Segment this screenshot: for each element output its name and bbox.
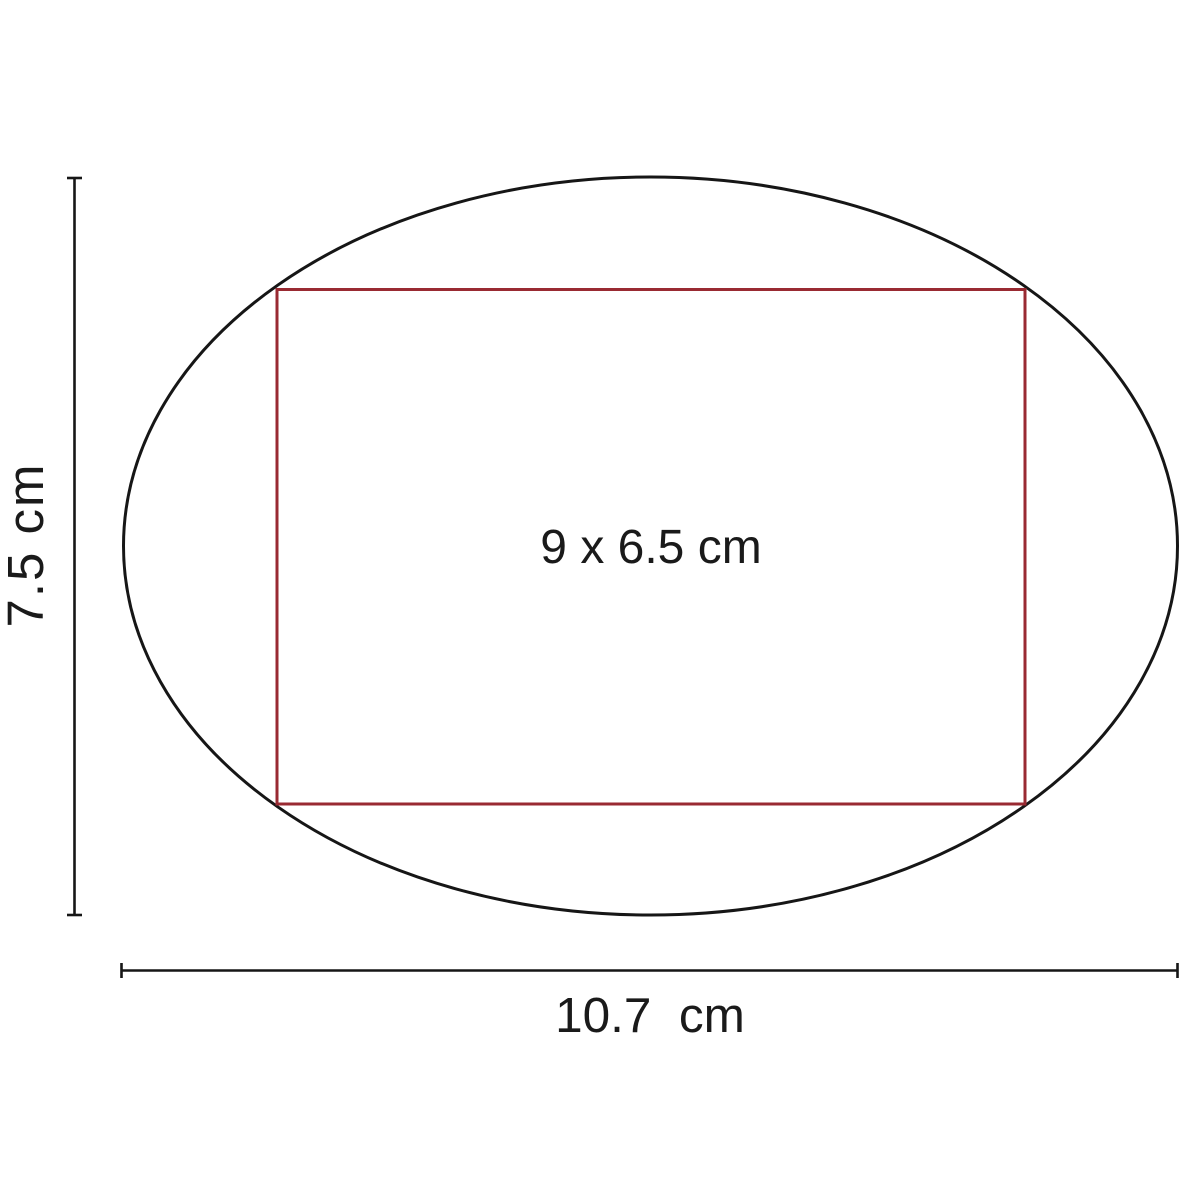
svg-text:10.7 cm: 10.7 cm (555, 988, 745, 1043)
svg-text:9 x 6.5 cm: 9 x 6.5 cm (540, 521, 761, 574)
svg-text:7.5 cm: 7.5 cm (0, 462, 54, 627)
